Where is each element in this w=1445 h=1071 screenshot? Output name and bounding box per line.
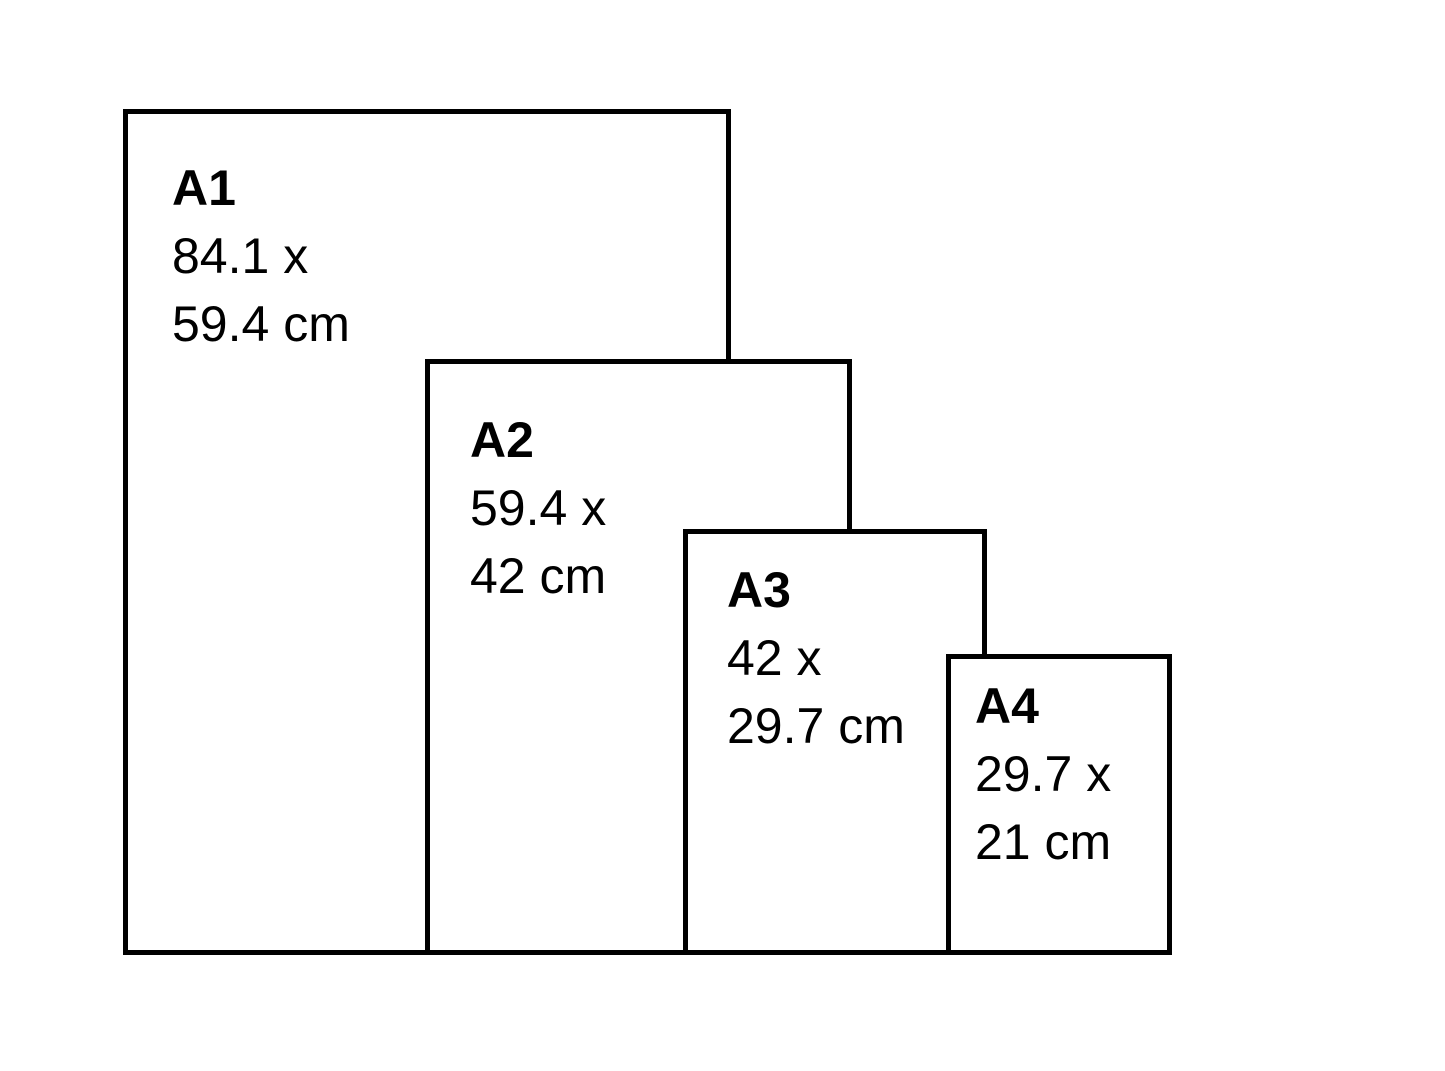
paper-label-a3: A3 42 x 29.7 cm xyxy=(727,556,905,760)
paper-name-a3: A3 xyxy=(727,556,905,624)
paper-name-a2: A2 xyxy=(470,406,606,474)
paper-dimension-height-a1: 84.1 x xyxy=(172,222,350,290)
paper-name-a4: A4 xyxy=(975,672,1111,740)
paper-dimension-height-a2: 59.4 x xyxy=(470,474,606,542)
paper-label-a1: A1 84.1 x 59.4 cm xyxy=(172,154,350,358)
paper-dimension-width-a3: 29.7 cm xyxy=(727,692,905,760)
paper-dimension-height-a3: 42 x xyxy=(727,624,905,692)
paper-name-a1: A1 xyxy=(172,154,350,222)
paper-dimension-width-a1: 59.4 cm xyxy=(172,290,350,358)
paper-sheet-a4: A4 29.7 x 21 cm xyxy=(946,654,1172,955)
paper-dimension-height-a4: 29.7 x xyxy=(975,740,1111,808)
paper-label-a2: A2 59.4 x 42 cm xyxy=(470,406,606,610)
paper-dimension-width-a4: 21 cm xyxy=(975,808,1111,876)
paper-dimension-width-a2: 42 cm xyxy=(470,542,606,610)
paper-sheet-a3: A3 42 x 29.7 cm xyxy=(683,529,987,955)
paper-label-a4: A4 29.7 x 21 cm xyxy=(975,672,1111,876)
paper-size-diagram: A1 84.1 x 59.4 cm A2 59.4 x 42 cm A3 42 … xyxy=(0,0,1445,1071)
